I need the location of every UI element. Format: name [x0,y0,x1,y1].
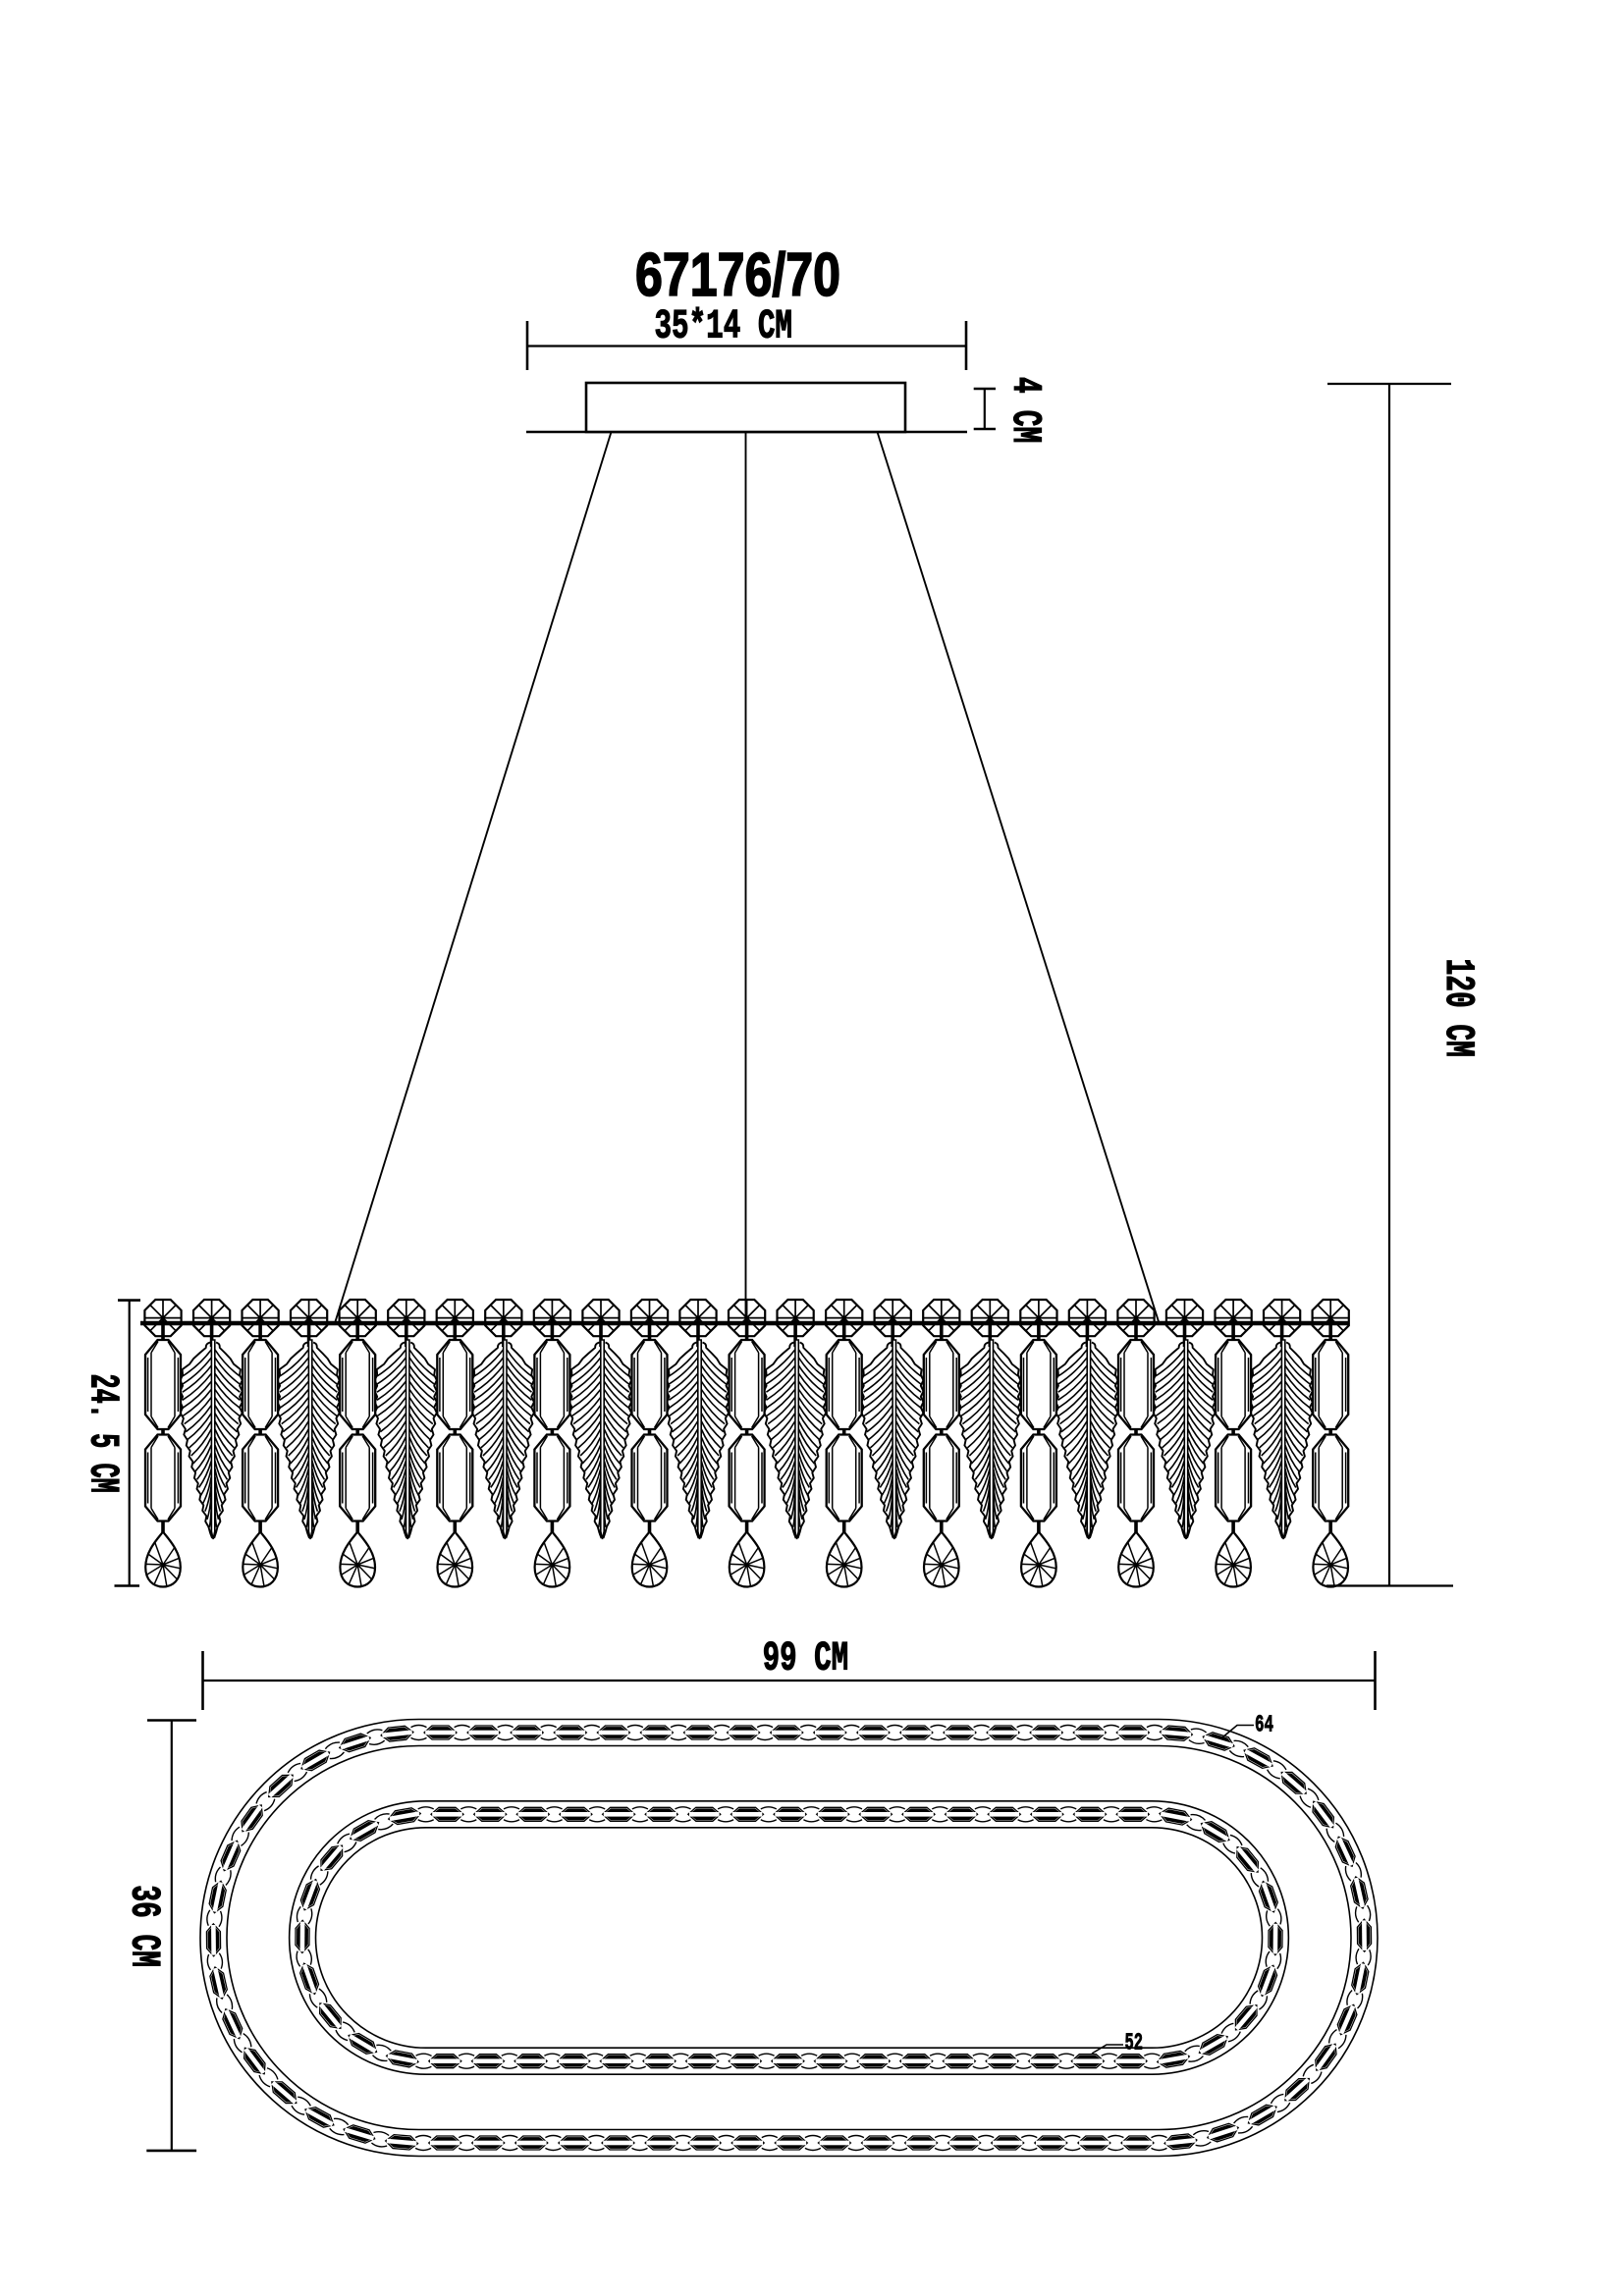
svg-text:67176/70: 67176/70 [635,241,840,309]
svg-text:120 CM: 120 CM [1434,959,1482,1057]
svg-text:36 CM: 36 CM [121,1885,168,1967]
svg-text:24. 5 CM: 24. 5 CM [80,1374,127,1493]
svg-text:52: 52 [1125,2031,1144,2057]
svg-text:4 CM: 4 CM [1001,377,1049,444]
svg-text:64: 64 [1255,1713,1273,1739]
svg-text:35*14 CM: 35*14 CM [655,303,793,350]
svg-text:99 CM: 99 CM [763,1635,849,1682]
